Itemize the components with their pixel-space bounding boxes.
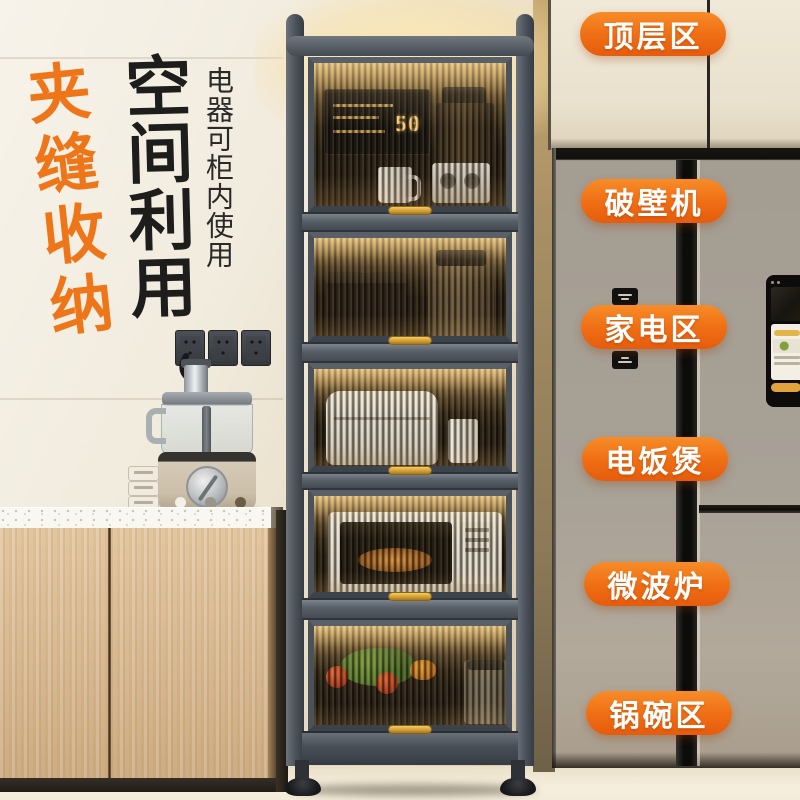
screen-button <box>771 383 800 392</box>
screen-card <box>771 324 800 380</box>
shelf-top-rail <box>286 36 534 56</box>
wood-cabinet-door-seam <box>108 528 111 778</box>
fridge-control-panel <box>612 288 638 305</box>
shelf-door-2 <box>308 232 512 342</box>
shelf-left-post <box>286 14 304 766</box>
screen-image <box>771 287 800 321</box>
zone-label-top: 顶层区 <box>580 12 726 56</box>
fridge-door-split <box>699 505 800 513</box>
door-handle-gold <box>388 466 432 475</box>
reeded-glass <box>314 238 506 336</box>
shelf-door-5 <box>308 620 512 731</box>
cooking-pot <box>326 272 406 332</box>
white-mug <box>378 167 412 203</box>
reeded-glass <box>314 369 506 466</box>
blender-jar <box>436 103 494 167</box>
glass-storage-jar <box>464 660 506 724</box>
shelf-foot <box>500 778 536 796</box>
glass-blender-jug <box>428 250 494 336</box>
headline-secondary: 空间利用 <box>119 51 192 321</box>
door-handle-gold <box>388 592 432 601</box>
shelf-door-1: 50 <box>308 57 512 212</box>
zone-label-pots: 锅碗区 <box>586 691 732 735</box>
microwave-controls <box>460 522 494 584</box>
zone-label-microwave: 微波炉 <box>584 562 730 606</box>
reeded-glass <box>314 626 506 725</box>
door-handle-gold <box>388 725 432 734</box>
fridge-smart-screen <box>766 275 800 407</box>
microwave <box>328 512 502 592</box>
door-handle-gold <box>388 336 432 345</box>
countertop <box>0 507 278 529</box>
shelf-door-4 <box>308 490 512 598</box>
reeded-glass: 50 <box>314 63 506 206</box>
wood-base-cabinet <box>0 528 278 778</box>
zone-label-blender: 破壁机 <box>581 179 727 223</box>
shelf-frame-band <box>302 342 518 363</box>
storage-jar <box>128 466 159 481</box>
shelf-bottom-rail <box>302 731 518 765</box>
rice-cooker <box>326 391 438 465</box>
screen-status-dots <box>771 279 800 285</box>
storage-jar <box>128 481 159 496</box>
tomato <box>376 672 398 694</box>
shelf-frame-band <box>302 598 518 620</box>
microwave-food <box>358 548 432 572</box>
appliance-display: 50 <box>395 112 421 136</box>
food-processor-shaft <box>202 406 211 454</box>
shelf-right-post <box>516 14 534 766</box>
sterilizer-appliance: 50 <box>324 89 430 155</box>
small-appliance <box>432 163 490 203</box>
reeded-glass <box>314 496 506 592</box>
fridge-control-panel <box>612 351 638 369</box>
shelf-frame-band <box>302 212 518 232</box>
food-processor-handle <box>146 408 166 444</box>
tomato <box>326 666 348 688</box>
product-image: 50 <box>0 0 800 800</box>
cabinet-kick-plate <box>0 778 278 792</box>
headline-note: 电器可柜内使用 <box>204 66 232 269</box>
wall-socket <box>241 330 271 366</box>
door-handle-gold <box>388 206 432 215</box>
pepper <box>410 660 436 680</box>
zone-label-appliance: 家电区 <box>581 305 727 349</box>
shelf-door-3 <box>308 363 512 472</box>
white-cup <box>448 419 478 463</box>
shelf-foot <box>285 778 321 796</box>
zone-label-ricecooker: 电饭煲 <box>582 437 728 481</box>
microwave-window <box>340 522 452 584</box>
